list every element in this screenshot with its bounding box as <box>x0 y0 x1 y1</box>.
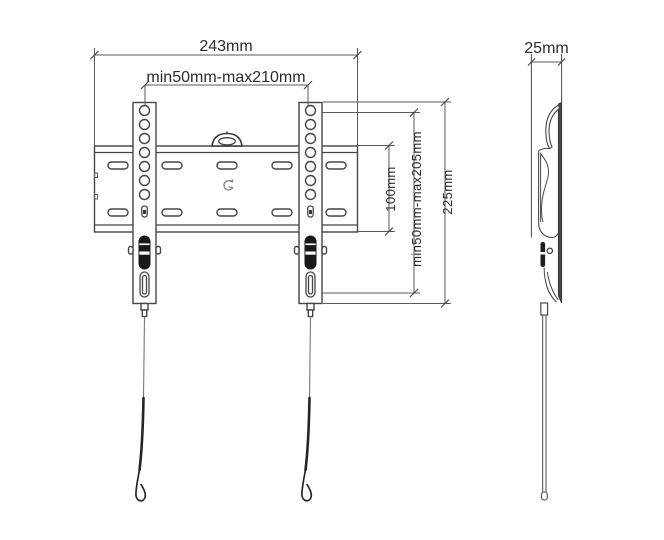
right-bracket-rail <box>295 103 327 317</box>
lock-mechanism-left <box>139 236 150 269</box>
side-view: 25mm <box>524 40 568 500</box>
ear-hole-side <box>547 248 552 253</box>
left-bracket-rail <box>129 103 161 317</box>
diagram-canvas: 243mm min50mm-max210mm 100mm <box>0 0 664 540</box>
level-bubble-icon <box>212 131 242 146</box>
string-connector-right <box>307 304 314 317</box>
lock-mechanism-right <box>305 236 316 269</box>
right-pull-string <box>302 317 311 501</box>
dim-bracket-height-label: 225mm <box>440 169 455 214</box>
dim-vesa-width-label: min50mm-max210mm <box>146 69 305 86</box>
string-connector-left <box>141 304 148 317</box>
wall-plate-profile <box>531 54 561 238</box>
dim-vesa-height-label: min50mm-max205mm <box>409 131 424 267</box>
rail-top-hook <box>546 105 560 149</box>
side-pull-string <box>541 303 548 500</box>
dim-overall-width-label: 243mm <box>199 38 252 55</box>
front-view: 243mm min50mm-max210mm 100mm <box>91 38 456 501</box>
dim-plate-height-label: 100mm <box>383 166 398 211</box>
dim-vesa-width: min50mm-max210mm <box>141 69 312 106</box>
left-pull-string <box>136 317 145 501</box>
bracket-rail-profile <box>541 103 562 304</box>
rail-bottom-hook <box>544 268 558 303</box>
dim-plate-height: 100mm <box>358 142 398 236</box>
tv-wall-mount-technical-drawing: 243mm min50mm-max210mm 100mm <box>0 0 664 540</box>
